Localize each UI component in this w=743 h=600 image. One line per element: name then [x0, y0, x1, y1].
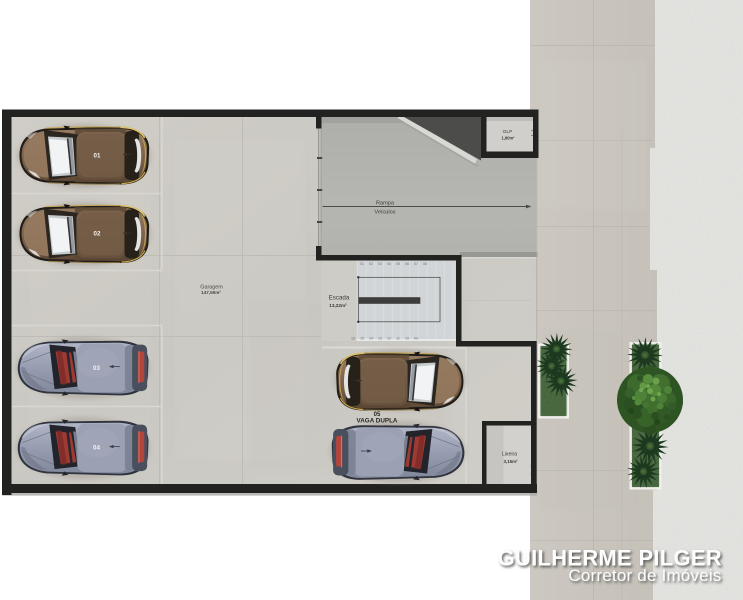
svg-text:02: 02 — [94, 230, 101, 237]
svg-text:Rampa: Rampa — [376, 201, 395, 207]
svg-text:09: 09 — [414, 337, 418, 341]
svg-text:03: 03 — [93, 365, 100, 372]
svg-text:GLP: GLP — [503, 129, 513, 135]
svg-text:Escada: Escada — [329, 295, 350, 302]
svg-text:07: 07 — [414, 262, 418, 266]
svg-text:147,59m²: 147,59m² — [201, 290, 221, 295]
svg-text:03: 03 — [378, 262, 382, 266]
svg-text:04: 04 — [93, 444, 100, 451]
svg-text:13,22m²: 13,22m² — [329, 303, 347, 308]
svg-text:Veículos: Veículos — [374, 210, 395, 216]
svg-text:11: 11 — [396, 337, 400, 341]
svg-text:01: 01 — [94, 152, 101, 159]
svg-text:16: 16 — [351, 337, 355, 341]
svg-text:14: 14 — [369, 337, 373, 341]
svg-text:15: 15 — [360, 337, 364, 341]
svg-text:Lixeira: Lixeira — [502, 452, 517, 458]
svg-text:3,15m²: 3,15m² — [504, 459, 518, 464]
svg-text:02: 02 — [369, 262, 373, 266]
svg-text:1,90m²: 1,90m² — [502, 136, 516, 141]
svg-text:VAGA DUPLA: VAGA DUPLA — [357, 418, 398, 425]
svg-text:01: 01 — [360, 262, 364, 266]
svg-text:08: 08 — [423, 262, 427, 266]
svg-text:12: 12 — [387, 337, 391, 341]
svg-text:06: 06 — [405, 262, 409, 266]
svg-text:13: 13 — [378, 337, 382, 341]
svg-text:04: 04 — [387, 262, 391, 266]
svg-text:05: 05 — [396, 262, 400, 266]
svg-text:Corretor de Imóveis: Corretor de Imóveis — [568, 566, 721, 585]
svg-text:10: 10 — [405, 337, 409, 341]
